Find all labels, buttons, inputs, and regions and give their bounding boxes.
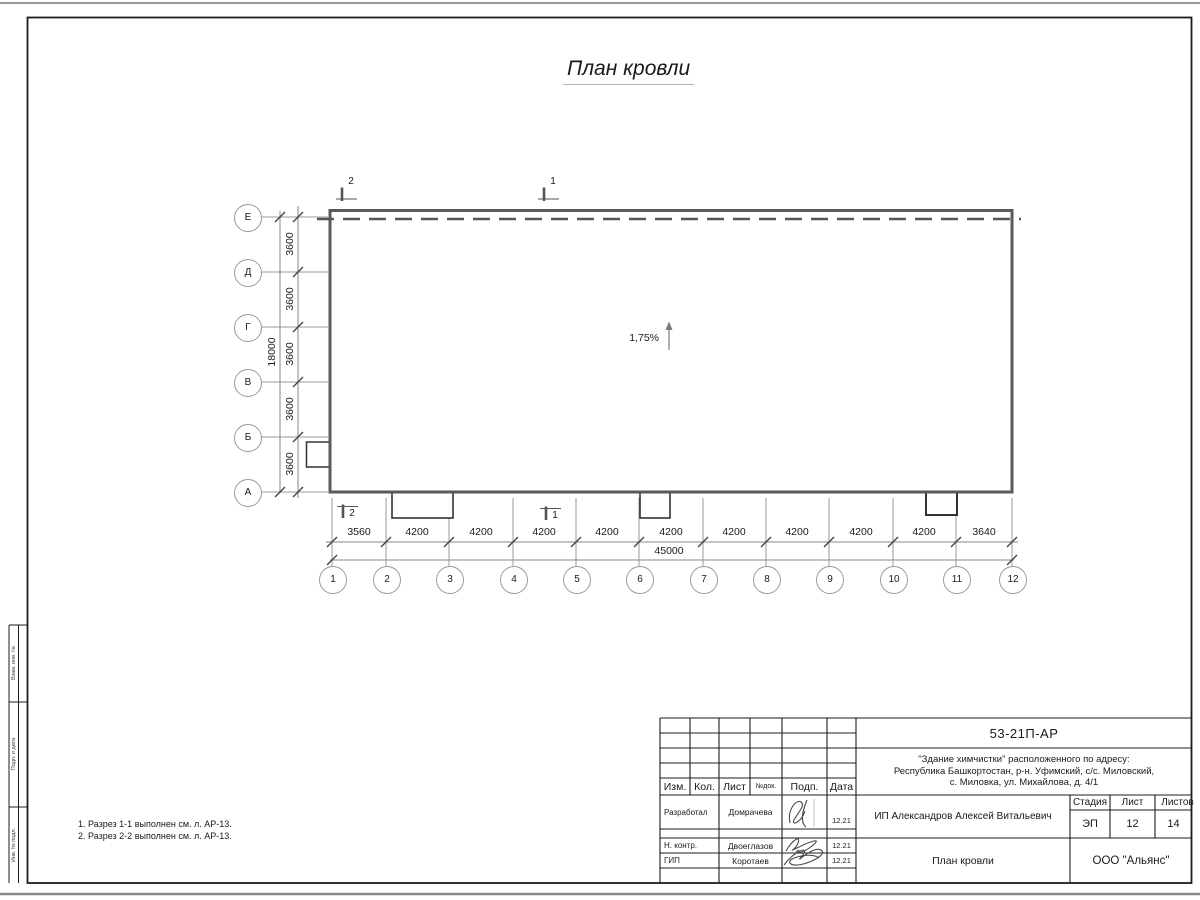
drawing-title: План кровли: [856, 838, 1070, 883]
dim-label: 3600: [284, 232, 296, 255]
dim-label: 4200: [405, 526, 428, 538]
axis-bubble-4: 4: [500, 566, 528, 594]
roof-outline: [307, 211, 1022, 519]
dim-label: 3600: [284, 452, 296, 475]
dim-label: 3600: [284, 397, 296, 420]
frame-side-label: Взам. инв. №: [11, 646, 17, 680]
axis-bubble-6: 6: [626, 566, 654, 594]
dim-label: 4200: [912, 526, 935, 538]
dim-label: 3640: [972, 526, 995, 538]
dim-total-label: 45000: [654, 545, 683, 557]
axis-bubble-8: 8: [753, 566, 781, 594]
dim-label: 4200: [849, 526, 872, 538]
tb-role: Н. контр.: [661, 838, 718, 853]
tb-header-ndok: №док.: [750, 778, 782, 795]
axis-bubble-D: Д: [234, 259, 262, 287]
tb-date: 12.21: [827, 811, 856, 829]
section-mark-2-top: 2: [348, 176, 354, 187]
dim-label: 3560: [347, 526, 370, 538]
slope-label: 1,75%: [613, 332, 659, 344]
stage-label: Стадия: [1070, 795, 1110, 810]
tb-name: Двоеглазов: [719, 838, 782, 853]
note-line: 1. Разрез 1-1 выполнен см. л. АР-13.: [78, 819, 232, 831]
dim-label: 4200: [722, 526, 745, 538]
axis-bubble-7: 7: [690, 566, 718, 594]
tb-header-data: Дата: [827, 778, 856, 795]
axis-bubble-10: 10: [880, 566, 908, 594]
frame-side-label: Подп. и дата: [11, 738, 17, 770]
axis-bubble-11: 11: [943, 566, 971, 594]
frame-side-label: Инв. № подл.: [11, 828, 17, 862]
dim-label: 4200: [532, 526, 555, 538]
axis-bubble-5: 5: [563, 566, 591, 594]
company-name: ООО "Альянс": [1070, 838, 1192, 883]
section-mark-1-top: 1: [550, 176, 556, 187]
client-name: ИП Александров Алексей Витальевич: [856, 795, 1070, 838]
dim-label: 3600: [284, 287, 296, 310]
sheets-value: 14: [1155, 810, 1192, 838]
axis-bubble-G: Г: [234, 314, 262, 342]
project-address: "Здание химчистки" расположенного по адр…: [856, 748, 1192, 795]
project-line: с. Миловка, ул. Михайлова, д. 4/1: [950, 777, 1098, 789]
axis-bubble-9: 9: [816, 566, 844, 594]
tb-date: 12.21: [827, 838, 856, 853]
signatures: [784, 799, 823, 865]
axis-bubble-E: Е: [234, 204, 262, 232]
axis-bubble-B: Б: [234, 424, 262, 452]
section-mark-1-bottom: 1: [552, 510, 558, 521]
tb-header-list: Лист: [719, 778, 750, 795]
axis-bubble-2: 2: [373, 566, 401, 594]
axis-bubble-A: А: [234, 479, 262, 507]
sheet-label: Лист: [1110, 795, 1155, 810]
tb-date: 12.21: [827, 853, 856, 868]
dim-label: 4200: [785, 526, 808, 538]
note-line: 2. Разрез 2-2 выполнен см. л. АР-13.: [78, 831, 232, 843]
axis-bubble-V: В: [234, 369, 262, 397]
project-line: Республика Башкортостан, р-н. Уфимский, …: [894, 766, 1154, 778]
project-line: "Здание химчистки" расположенного по адр…: [918, 754, 1129, 766]
stage-value: ЭП: [1070, 810, 1110, 838]
tb-header-kol: Кол.: [690, 778, 719, 795]
signature-domracheva: [789, 800, 807, 827]
dim-label: 3600: [284, 342, 296, 365]
axis-bubble-1: 1: [319, 566, 347, 594]
sheet-value: 12: [1110, 810, 1155, 838]
axis-bubble-3: 3: [436, 566, 464, 594]
page-title: План кровли: [563, 57, 694, 85]
notes-block: 1. Разрез 1-1 выполнен см. л. АР-13. 2. …: [78, 819, 232, 842]
tb-header-izm: Изм.: [660, 778, 690, 795]
section-mark-2-bottom: 2: [349, 508, 355, 519]
tb-name: Домрачева: [719, 795, 782, 829]
dim-label: 4200: [595, 526, 618, 538]
tb-name: Коротаев: [719, 853, 782, 868]
dim-label: 4200: [469, 526, 492, 538]
sheets-label: Листов: [1155, 795, 1200, 810]
axis-bubble-12: 12: [999, 566, 1027, 594]
dim-label: 4200: [659, 526, 682, 538]
doc-number: 53-21П-АР: [856, 718, 1192, 748]
drawing-sheet: План кровли 1,75% 2 1 2 1 Е Д Г В Б А 1 …: [0, 0, 1200, 900]
tb-role: Разработал: [661, 795, 718, 829]
tb-header-podp: Подп.: [782, 778, 827, 795]
tb-role: ГИП: [661, 853, 718, 868]
dim-total-label: 18000: [266, 337, 278, 366]
